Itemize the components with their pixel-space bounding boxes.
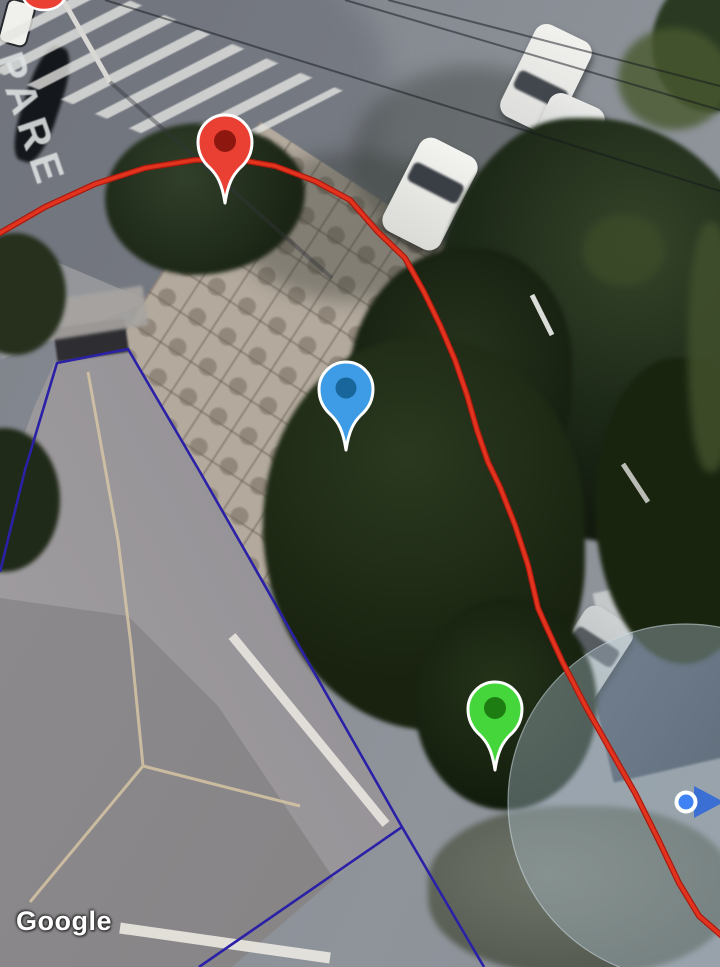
roof-ridges <box>30 372 300 902</box>
google-watermark: Google <box>16 906 112 937</box>
map-overlay <box>0 0 720 967</box>
red-pin-center-icon <box>214 130 236 152</box>
light-pole <box>63 0 110 82</box>
lane-dashes <box>532 295 648 502</box>
map-canvas[interactable]: PARE <box>0 0 720 967</box>
blue-pin-center-icon <box>336 378 357 399</box>
red-pin-partial[interactable] <box>23 0 65 10</box>
location-dot-icon <box>677 793 696 812</box>
sunlit-walls <box>120 636 386 958</box>
parcel-boundary-branch[interactable] <box>402 827 484 967</box>
parcel-boundary[interactable] <box>0 349 402 967</box>
blue-pin[interactable] <box>319 362 373 450</box>
red-pin[interactable] <box>198 115 252 203</box>
green-pin-center-icon <box>484 697 506 719</box>
